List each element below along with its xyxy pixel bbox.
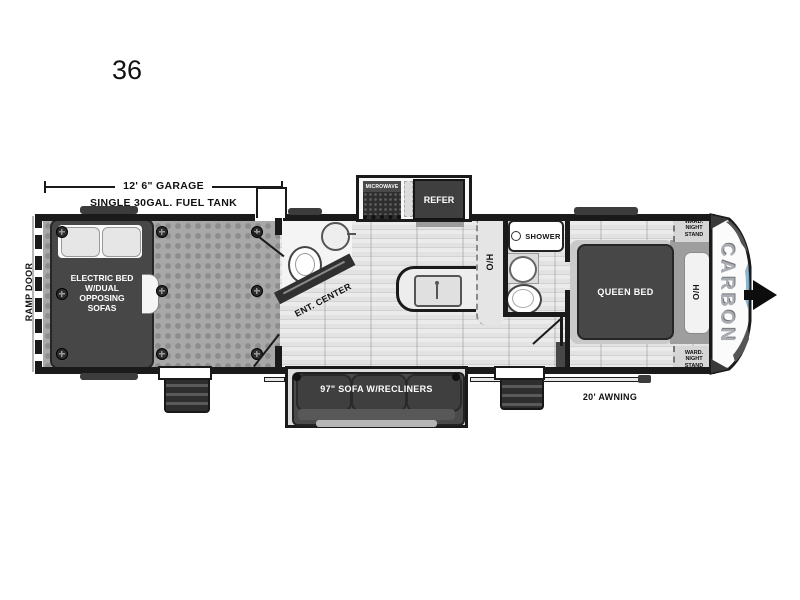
pillow-right (102, 227, 141, 257)
slide-bolt (293, 373, 301, 381)
awning-label: 20' AWNING (560, 391, 660, 403)
main-door-threshold (494, 366, 545, 380)
bath-sink (321, 222, 350, 251)
tie-down-anchor (56, 288, 68, 300)
kitchen-overhead-label: O/H (484, 238, 496, 286)
floorplan-canvas: 36 12' 6" GARAGE SINGLE 30GAL. FUEL TANK… (0, 0, 800, 600)
tie-down-anchor (156, 285, 168, 297)
entry-steps-garage (164, 376, 210, 413)
tie-down-anchor (156, 348, 168, 360)
awning-end-cap (638, 375, 651, 383)
garage-dimension-text: 12' 6" GARAGE (115, 180, 212, 192)
wall-top-mid (283, 214, 356, 221)
bath2-wall-left (503, 221, 508, 317)
shower-head-icon (511, 231, 521, 241)
island-faucet-neck (436, 285, 438, 299)
bedroom-wall (565, 290, 570, 367)
floorplan-model-number: 36 (112, 55, 142, 86)
brand-logo: CARBON (712, 219, 740, 369)
refer-shadow (416, 222, 464, 227)
wall-top-left (42, 214, 255, 221)
garage-wall-stub-bottom (275, 346, 282, 367)
kitchen-slideout: MICROWAVE REFER (356, 175, 472, 222)
bath2-sink (509, 256, 537, 283)
bedroom-door-leaf (560, 313, 563, 346)
bed-slide-topper-bottom (80, 373, 138, 380)
island-sink (414, 275, 462, 307)
wall-top-right (472, 214, 715, 221)
entry-steps-main (500, 377, 544, 410)
range-unit: MICROWAVE (363, 181, 401, 219)
refrigerator: REFER (413, 179, 465, 220)
grab-handle (288, 208, 322, 215)
bedroom-overhead-label: O/H (690, 268, 702, 316)
bed-slide-topper-top (80, 206, 138, 214)
queen-bed: QUEEN BED (577, 244, 674, 340)
bedroom-slide-topper (574, 207, 638, 215)
ramp-door-label: RAMP DOOR (23, 247, 35, 337)
tie-down-anchor (251, 285, 263, 297)
garage-entry-door-open (256, 187, 287, 218)
microwave-label: MICROWAVE (363, 181, 401, 192)
sofa-seat-front (298, 409, 455, 420)
bath2-wall-right (565, 221, 570, 262)
tie-down-anchor (56, 226, 68, 238)
hitch-pin-icon (744, 274, 782, 316)
tie-down-anchor (156, 226, 168, 238)
slide-bolt (452, 373, 460, 381)
ramp-door (35, 214, 42, 374)
sofa-slide-base (316, 420, 437, 427)
shower: SHOWER (508, 220, 564, 252)
awning-bar-left (264, 377, 285, 382)
bath2-toilet-bowl (512, 289, 534, 308)
sofa-slideout: 97" SOFA W/RECLINERS (285, 366, 468, 428)
cooktop-burners (363, 192, 401, 215)
garage-door-threshold (158, 366, 212, 380)
sofa-label: 97" SOFA W/RECLINERS (292, 382, 461, 396)
bath-sink-faucet (347, 233, 356, 235)
tie-down-anchor (56, 348, 68, 360)
counter-gap (404, 181, 413, 217)
garage-dimension-label: 12' 6" GARAGE (44, 179, 283, 193)
